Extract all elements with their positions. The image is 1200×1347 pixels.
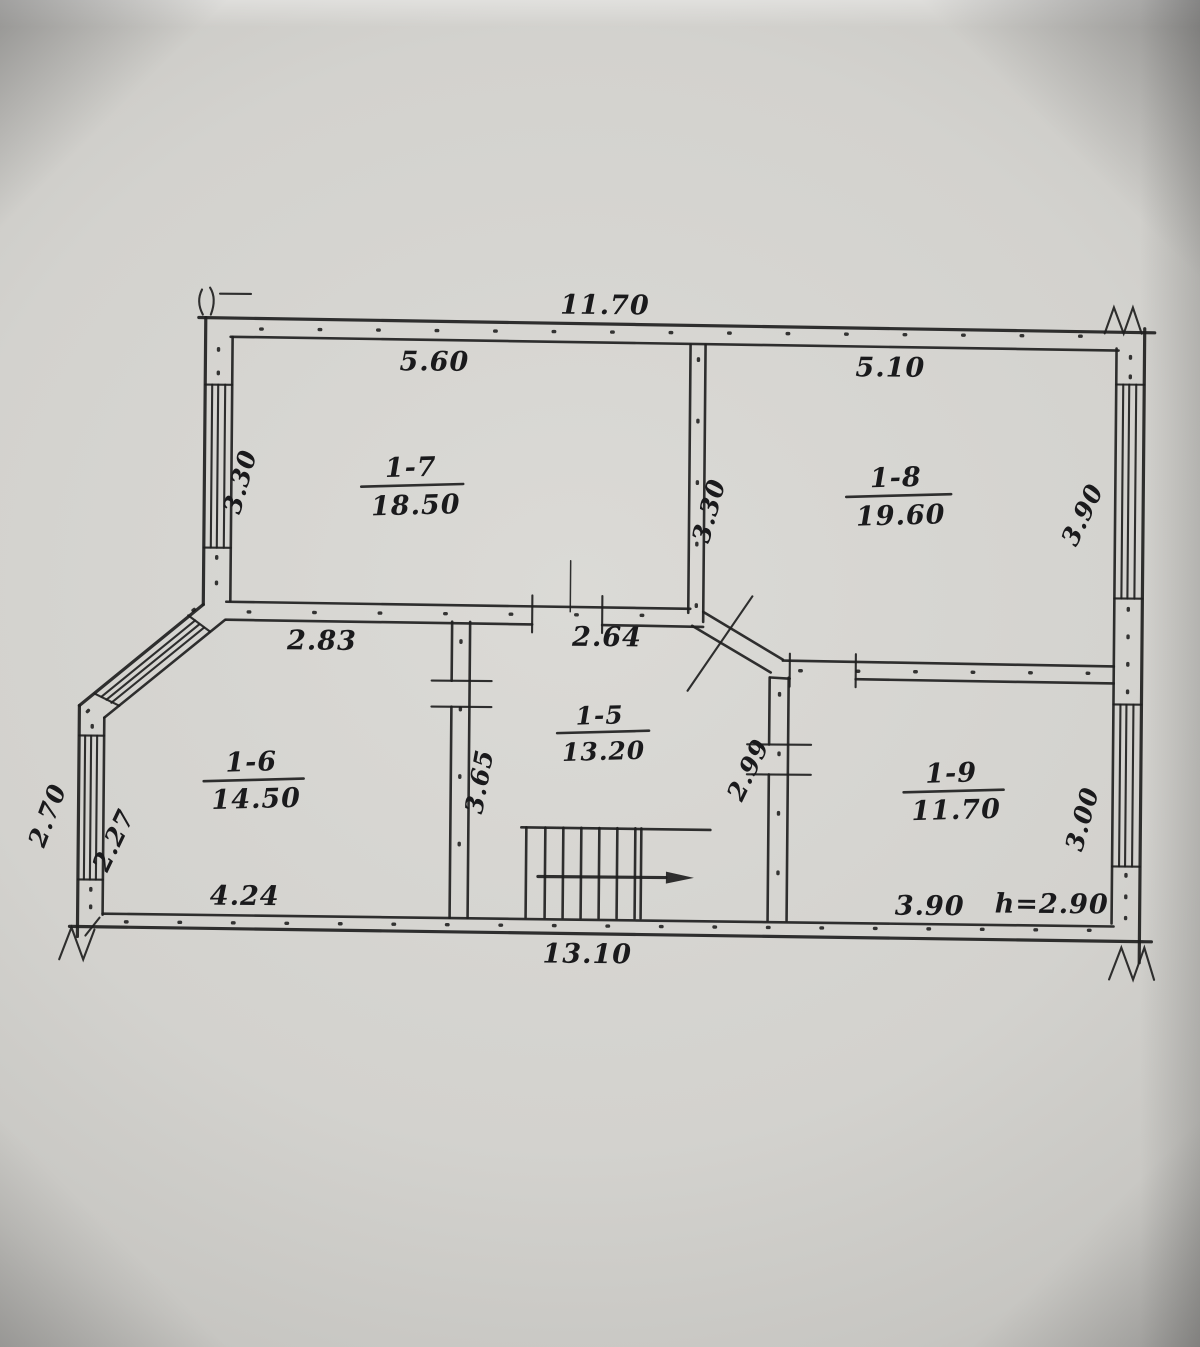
room-label-1-8: 1-8 19.60 (845, 461, 952, 533)
dim-wall-seg-left: 2.83 (286, 625, 357, 657)
dim-top-overall: 11.70 (560, 290, 650, 322)
dim-room17-width: 5.60 (399, 346, 469, 378)
dim-right-lower-height: 3.00 (1060, 784, 1105, 854)
room-id: 1-6 (225, 746, 278, 778)
room-label-1-6: 1-6 14.50 (203, 746, 305, 817)
dim-ceiling-height: h=2.90 (995, 888, 1109, 920)
scanned-floor-plan-page: 11.70 5.60 5.10 3.30 3.30 3.90 2.83 2.64… (0, 0, 1200, 1347)
room-label-1-7: 1-7 18.50 (360, 451, 464, 523)
dim-room19-width: 3.90 (895, 891, 965, 923)
room-area: 11.70 (911, 794, 1001, 827)
dim-wall-seg-right: 2.64 (571, 622, 642, 654)
dim-room19-height-left: 2.99 (721, 734, 776, 806)
dim-bottom-overall: 13.10 (542, 939, 632, 971)
room-area: 18.50 (371, 489, 461, 522)
dim-room16-width: 4.24 (210, 881, 280, 913)
top-left-break-icon (199, 289, 203, 314)
room-area: 14.50 (211, 783, 301, 816)
interior-walls (224, 341, 1117, 924)
dim-left-lower-inner: 2.27 (86, 805, 141, 877)
room-id: 1-5 (575, 700, 624, 730)
room-area: 19.60 (856, 499, 946, 532)
dim-right-upper-height: 3.90 (1055, 479, 1109, 550)
room-label-1-5: 1-5 13.20 (556, 700, 650, 767)
room-id: 1-9 (925, 757, 978, 789)
top-right-break-icon (1105, 307, 1142, 333)
floor-plan-drawing: 11.70 5.60 5.10 3.30 3.30 3.90 2.83 2.64… (0, 0, 1200, 1347)
room-label-1-9: 1-9 11.70 (903, 757, 1005, 828)
dim-room15-height: 3.65 (459, 747, 499, 816)
room-area: 13.20 (562, 736, 646, 767)
dim-room18-width: 5.10 (855, 352, 925, 384)
room-id: 1-8 (869, 462, 922, 494)
staircase (521, 827, 711, 919)
dim-mid-wall-height: 3.30 (686, 476, 731, 546)
dim-left-lower-outer: 2.70 (22, 780, 72, 852)
stair-direction-arrow-icon (666, 872, 694, 884)
bottom-right-break-icon (1109, 947, 1154, 979)
room-id: 1-7 (384, 452, 437, 484)
